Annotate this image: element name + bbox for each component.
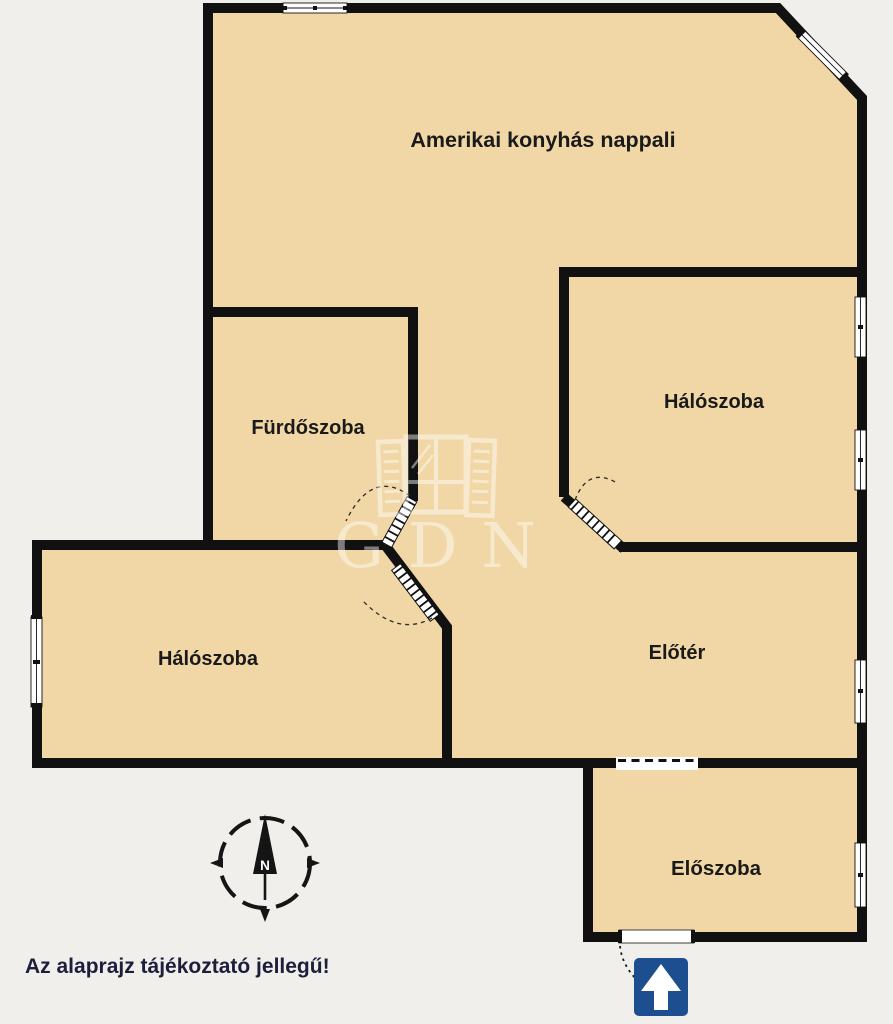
window-top-icon [283, 3, 347, 13]
window-entry-icon [855, 843, 866, 907]
room-label-hall: Előtér [649, 642, 706, 664]
floorplan-page: GDN Amerikai konyhás nappali Hálószoba F… [0, 0, 893, 1024]
compass-north-label: N [260, 858, 270, 873]
room-label-bathroom: Fürdőszoba [251, 417, 365, 439]
room-label-living: Amerikai konyhás nappali [410, 128, 675, 152]
opening-hall-entry [616, 757, 698, 770]
room-label-entry: Előszoba [671, 857, 762, 880]
window-bedroomright-1-icon [855, 297, 866, 357]
disclaimer-note: Az alaprajz tájékoztató jellegű! [25, 955, 330, 978]
watermark-text: GDN [334, 509, 560, 582]
entrance-opening [618, 930, 695, 943]
room-label-bedroom-left: Hálószoba [158, 648, 259, 670]
window-bedroomright-2-icon [855, 430, 866, 490]
floorplan-drawing: GDN Amerikai konyhás nappali Hálószoba F… [0, 0, 893, 1024]
room-label-bedroom-right: Hálószoba [664, 391, 765, 413]
window-hall-icon [855, 660, 866, 723]
window-bedroomleft-icon [31, 615, 42, 707]
